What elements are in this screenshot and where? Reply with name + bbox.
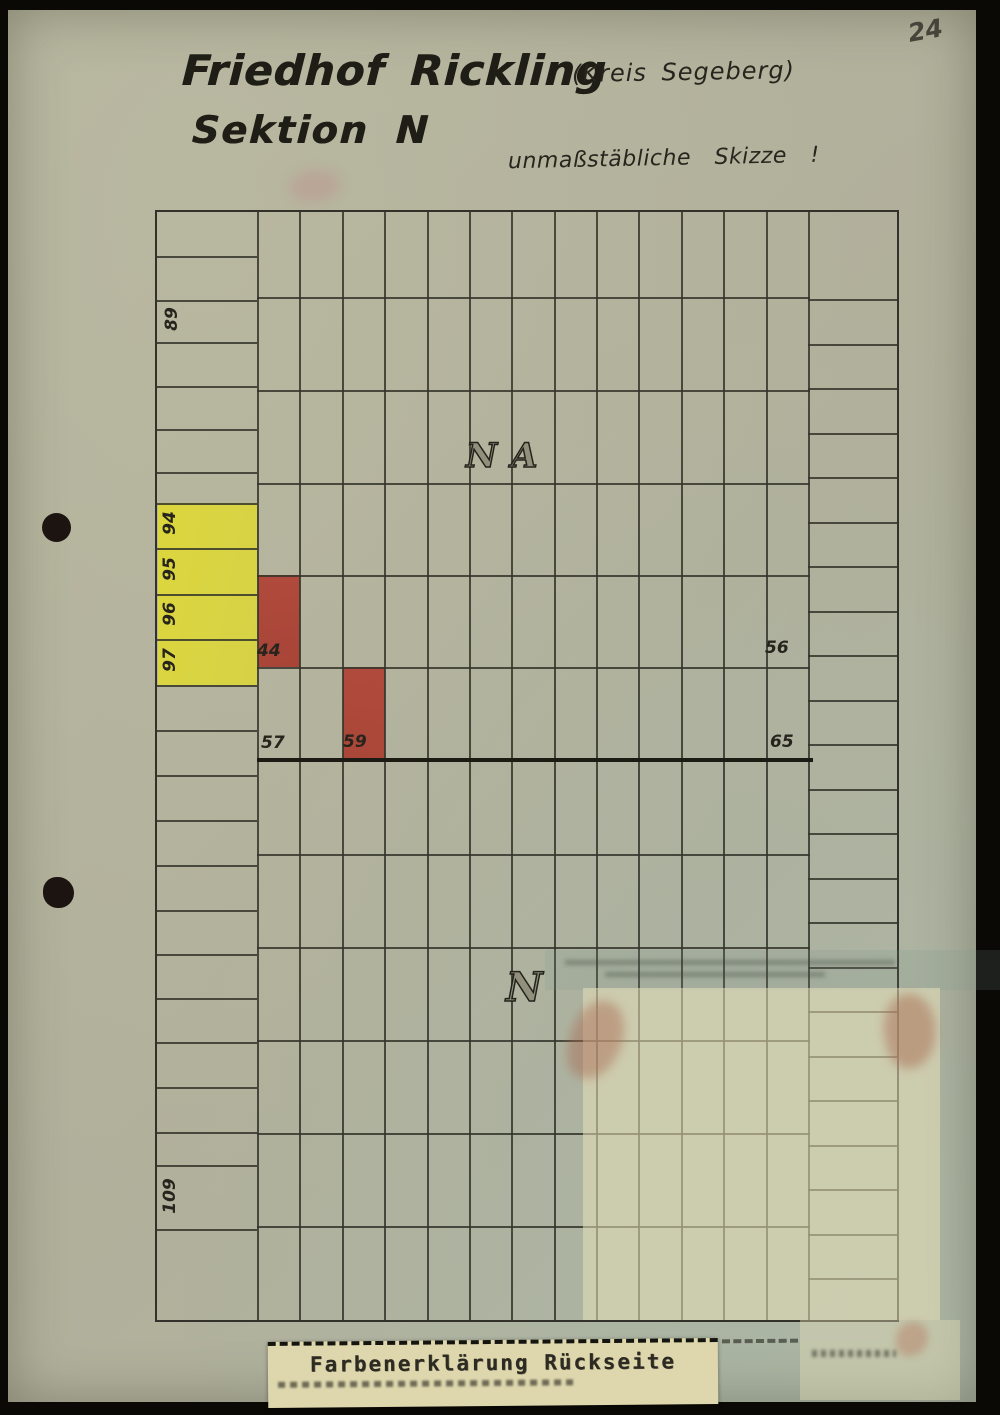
grid-line: [157, 1229, 257, 1231]
grid-line: [257, 575, 810, 577]
scanned-document-page: Friedhof Rickling (Kreis Segeberg) Sekti…: [0, 0, 1000, 1415]
plot-number-65: 65: [770, 732, 794, 752]
grid-line: [469, 212, 471, 1320]
grid-line: [808, 299, 897, 301]
stamp-dashed-line-extension: [722, 1339, 798, 1344]
grid-line: [157, 1165, 257, 1167]
grid-line: [808, 566, 897, 568]
stamp-text: Farbenerklärung Rückseite: [268, 1349, 718, 1377]
grid-line: [157, 342, 257, 344]
section-label: Sektion N: [191, 108, 431, 152]
punch-hole-top: [42, 513, 71, 542]
grid-line: [808, 611, 897, 613]
grid-line: [808, 477, 897, 479]
grid-line: [157, 730, 257, 732]
grid-line: [808, 922, 897, 924]
grid-line: [808, 789, 897, 791]
grid-line: [808, 433, 897, 435]
grid-line: [157, 910, 257, 912]
grid-line: [299, 212, 301, 1320]
grid-line: [257, 483, 810, 485]
grid-line: [157, 865, 257, 867]
taped-paper-patch-edge: [800, 1320, 960, 1400]
plot-number-97: 97: [160, 640, 180, 680]
grid-line: [157, 775, 257, 777]
color-legend-stamp: Farbenerklärung Rückseite: [268, 1338, 719, 1408]
ghost-text-band: [545, 950, 1000, 990]
grid-line: [157, 386, 257, 388]
grid-line: [808, 522, 897, 524]
ghost-text-smudge: [565, 960, 895, 965]
grid-line: [554, 212, 556, 1320]
page-title: Friedhof Rickling: [181, 46, 608, 95]
grid-line: [257, 390, 810, 392]
plot-number-109: 109: [160, 1176, 180, 1216]
grid-line: [342, 212, 344, 1320]
typed-smudge-marks: [812, 1350, 896, 1357]
plot-number-44: 44: [257, 641, 281, 661]
area-label-na: NA: [466, 436, 551, 476]
plot-number-89: 89: [162, 299, 182, 339]
grid-line: [808, 344, 897, 346]
grid-line: [157, 256, 257, 258]
grid-line: [808, 744, 897, 746]
punch-hole-bottom: [43, 877, 74, 908]
plot-number-56: 56: [765, 638, 789, 658]
grid-line: [157, 820, 257, 822]
grid-line: [808, 700, 897, 702]
grid-line: [157, 685, 257, 687]
grid-line: [157, 1132, 257, 1134]
district-label: (Kreis Segeberg): [572, 56, 795, 88]
area-label-n: N: [506, 964, 543, 1011]
plot-number-94: 94: [160, 503, 180, 543]
plot-number-57: 57: [261, 733, 285, 753]
grid-line: [157, 954, 257, 956]
grid-line: [257, 854, 810, 856]
stamp-smudge-line: [278, 1379, 578, 1388]
grid-line: [808, 833, 897, 835]
grid-line: [157, 1042, 257, 1044]
grid-line: [157, 472, 257, 474]
grid-line: [157, 1087, 257, 1089]
grid-line: [427, 212, 429, 1320]
grid-line: [808, 878, 897, 880]
plot-number-96: 96: [160, 594, 180, 634]
grid-line: [257, 297, 810, 299]
grid-line: [157, 429, 257, 431]
grid-line: [384, 212, 386, 1320]
section-divider-line: [257, 758, 813, 762]
plot-number-95: 95: [160, 549, 180, 589]
grid-line: [511, 212, 513, 1320]
plot-number-59: 59: [343, 732, 367, 752]
grid-line: [808, 388, 897, 390]
handwritten-page-number: 24: [906, 13, 945, 48]
grid-line: [808, 655, 897, 657]
grid-line: [157, 998, 257, 1000]
ghost-text-smudge: [605, 972, 825, 977]
grid-line: [257, 947, 810, 949]
grid-line: [257, 667, 810, 669]
grid-line: [257, 212, 259, 1320]
